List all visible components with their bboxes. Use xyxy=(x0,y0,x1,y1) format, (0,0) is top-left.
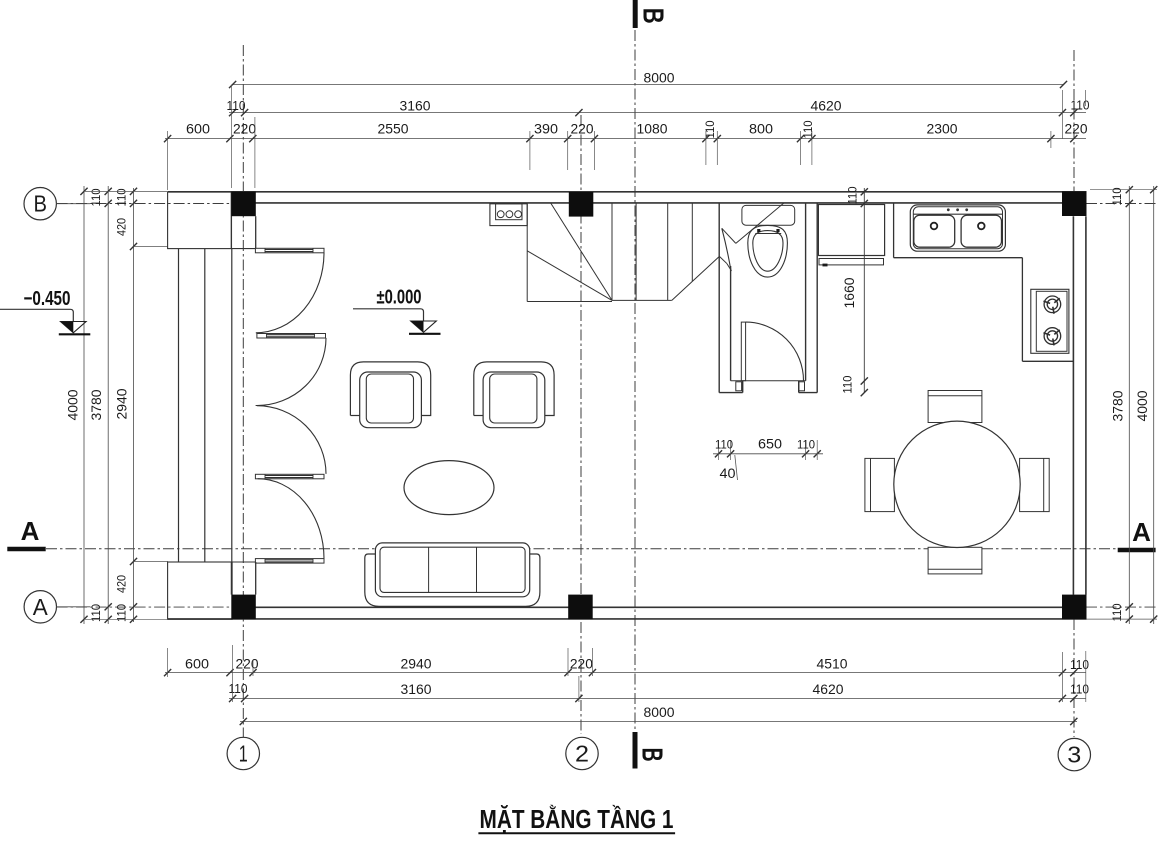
svg-text:110: 110 xyxy=(227,99,246,113)
svg-text:800: 800 xyxy=(749,122,773,137)
svg-text:A: A xyxy=(1132,517,1151,547)
svg-text:3: 3 xyxy=(1067,742,1081,768)
svg-text:220: 220 xyxy=(1065,122,1088,137)
svg-text:110: 110 xyxy=(229,682,248,696)
svg-text:A: A xyxy=(33,594,49,620)
svg-text:220: 220 xyxy=(570,657,593,672)
svg-text:110: 110 xyxy=(797,438,815,452)
svg-text:650: 650 xyxy=(758,437,782,452)
svg-text:420: 420 xyxy=(115,218,129,236)
svg-text:B: B xyxy=(636,748,668,762)
svg-text:4510: 4510 xyxy=(817,657,848,672)
svg-text:−0.450: −0.450 xyxy=(24,288,71,310)
svg-text:110: 110 xyxy=(845,186,859,204)
svg-text:390: 390 xyxy=(534,122,558,137)
svg-text:600: 600 xyxy=(186,122,210,137)
svg-text:2940: 2940 xyxy=(115,389,130,420)
svg-text:3160: 3160 xyxy=(401,682,432,697)
svg-text:110: 110 xyxy=(1071,99,1090,113)
svg-text:40: 40 xyxy=(720,466,736,481)
svg-text:B: B xyxy=(33,191,47,217)
svg-text:110: 110 xyxy=(801,120,815,138)
svg-text:A: A xyxy=(21,516,40,546)
svg-text:110: 110 xyxy=(1070,658,1089,672)
svg-text:110: 110 xyxy=(703,120,717,138)
svg-text:3780: 3780 xyxy=(1110,391,1125,422)
svg-text:MẶT BẰNG TẦNG 1: MẶT BẰNG TẦNG 1 xyxy=(480,804,674,834)
svg-text:1080: 1080 xyxy=(637,122,668,137)
svg-text:220: 220 xyxy=(236,657,259,672)
svg-text:110: 110 xyxy=(841,375,855,393)
svg-text:110: 110 xyxy=(1070,683,1089,697)
svg-text:B: B xyxy=(637,8,669,24)
svg-text:110: 110 xyxy=(115,188,129,206)
svg-text:220: 220 xyxy=(571,122,594,137)
svg-text:2940: 2940 xyxy=(401,657,432,672)
svg-text:±0.000: ±0.000 xyxy=(377,287,422,309)
svg-text:8000: 8000 xyxy=(644,71,675,86)
svg-text:4620: 4620 xyxy=(811,98,842,113)
svg-text:600: 600 xyxy=(185,657,209,672)
svg-text:3160: 3160 xyxy=(400,98,431,113)
svg-text:2: 2 xyxy=(575,741,589,767)
svg-text:4000: 4000 xyxy=(1135,391,1150,422)
svg-text:2550: 2550 xyxy=(378,122,409,137)
svg-text:2300: 2300 xyxy=(927,122,958,137)
svg-text:1660: 1660 xyxy=(842,278,857,309)
svg-text:3780: 3780 xyxy=(89,390,104,421)
svg-text:110: 110 xyxy=(89,188,103,206)
svg-text:1: 1 xyxy=(239,741,248,767)
svg-text:4000: 4000 xyxy=(66,390,81,421)
svg-text:110: 110 xyxy=(715,438,733,452)
svg-text:420: 420 xyxy=(115,575,129,593)
svg-text:4620: 4620 xyxy=(813,682,844,697)
svg-text:220: 220 xyxy=(233,122,256,137)
svg-text:8000: 8000 xyxy=(644,705,675,720)
